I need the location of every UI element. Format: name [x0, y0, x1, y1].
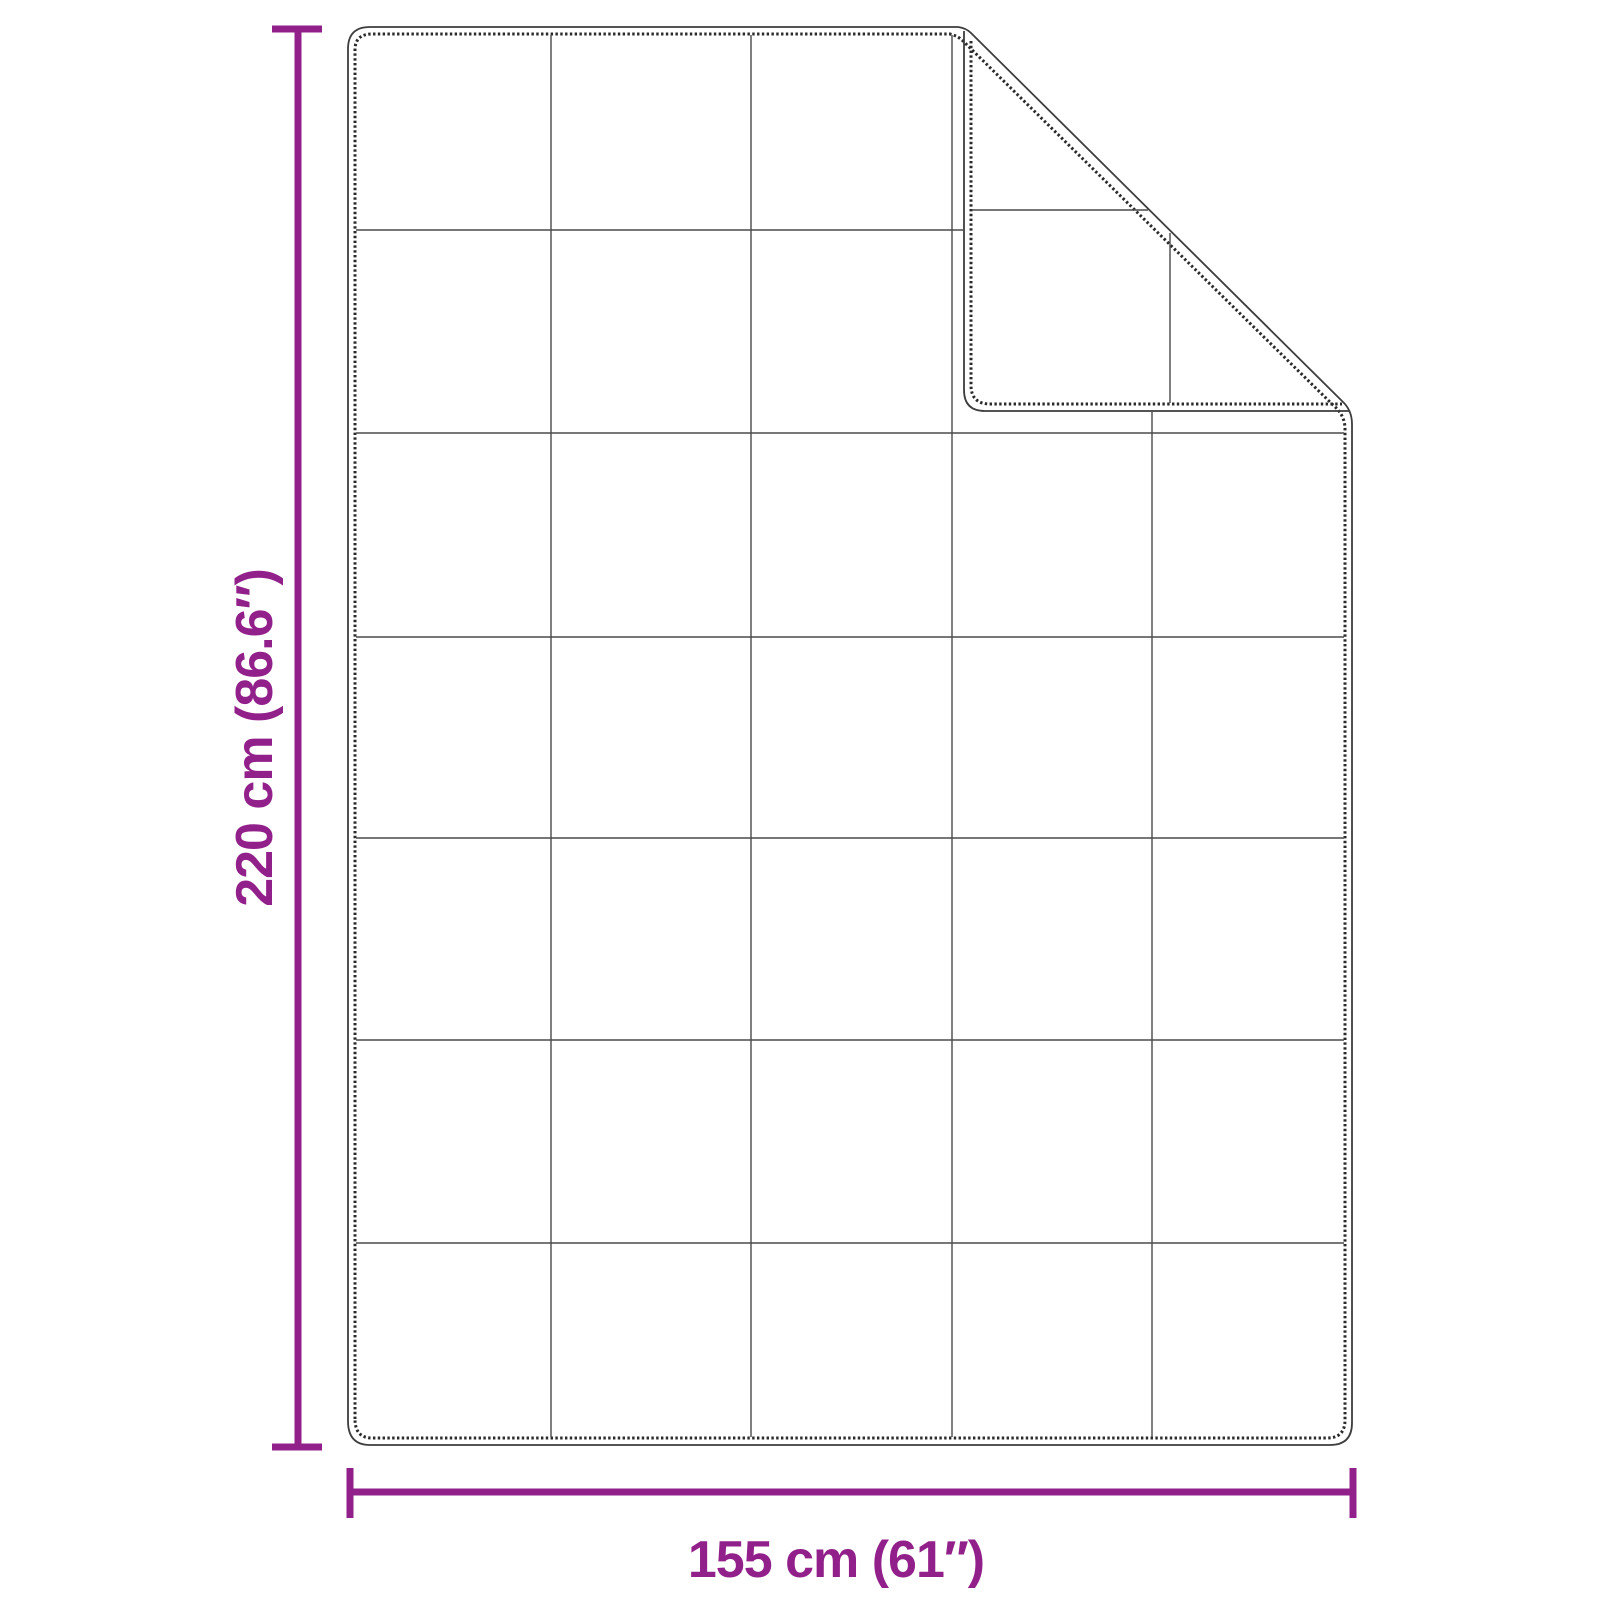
blanket-diagram-svg: 220 cm (86.6″) 155 cm (61″): [0, 0, 1600, 1600]
flap-edge-stitch: [971, 41, 1342, 404]
quilt-grid-lines: [356, 35, 1344, 1437]
blanket-body: [348, 27, 1352, 1445]
width-dimension-label: 155 cm (61″): [688, 1531, 984, 1589]
blanket-stitch-border: [355, 34, 1345, 1438]
folded-corner-flap: [964, 31, 1349, 411]
blanket-outline: [348, 27, 1352, 1445]
height-dimension: 220 cm (86.6″): [226, 29, 322, 1447]
flap-edge-outline: [964, 31, 1349, 411]
product-dimension-diagram: 220 cm (86.6″) 155 cm (61″): [0, 0, 1600, 1600]
width-dimension: 155 cm (61″): [350, 1468, 1353, 1589]
height-dimension-label: 220 cm (86.6″): [226, 569, 284, 907]
